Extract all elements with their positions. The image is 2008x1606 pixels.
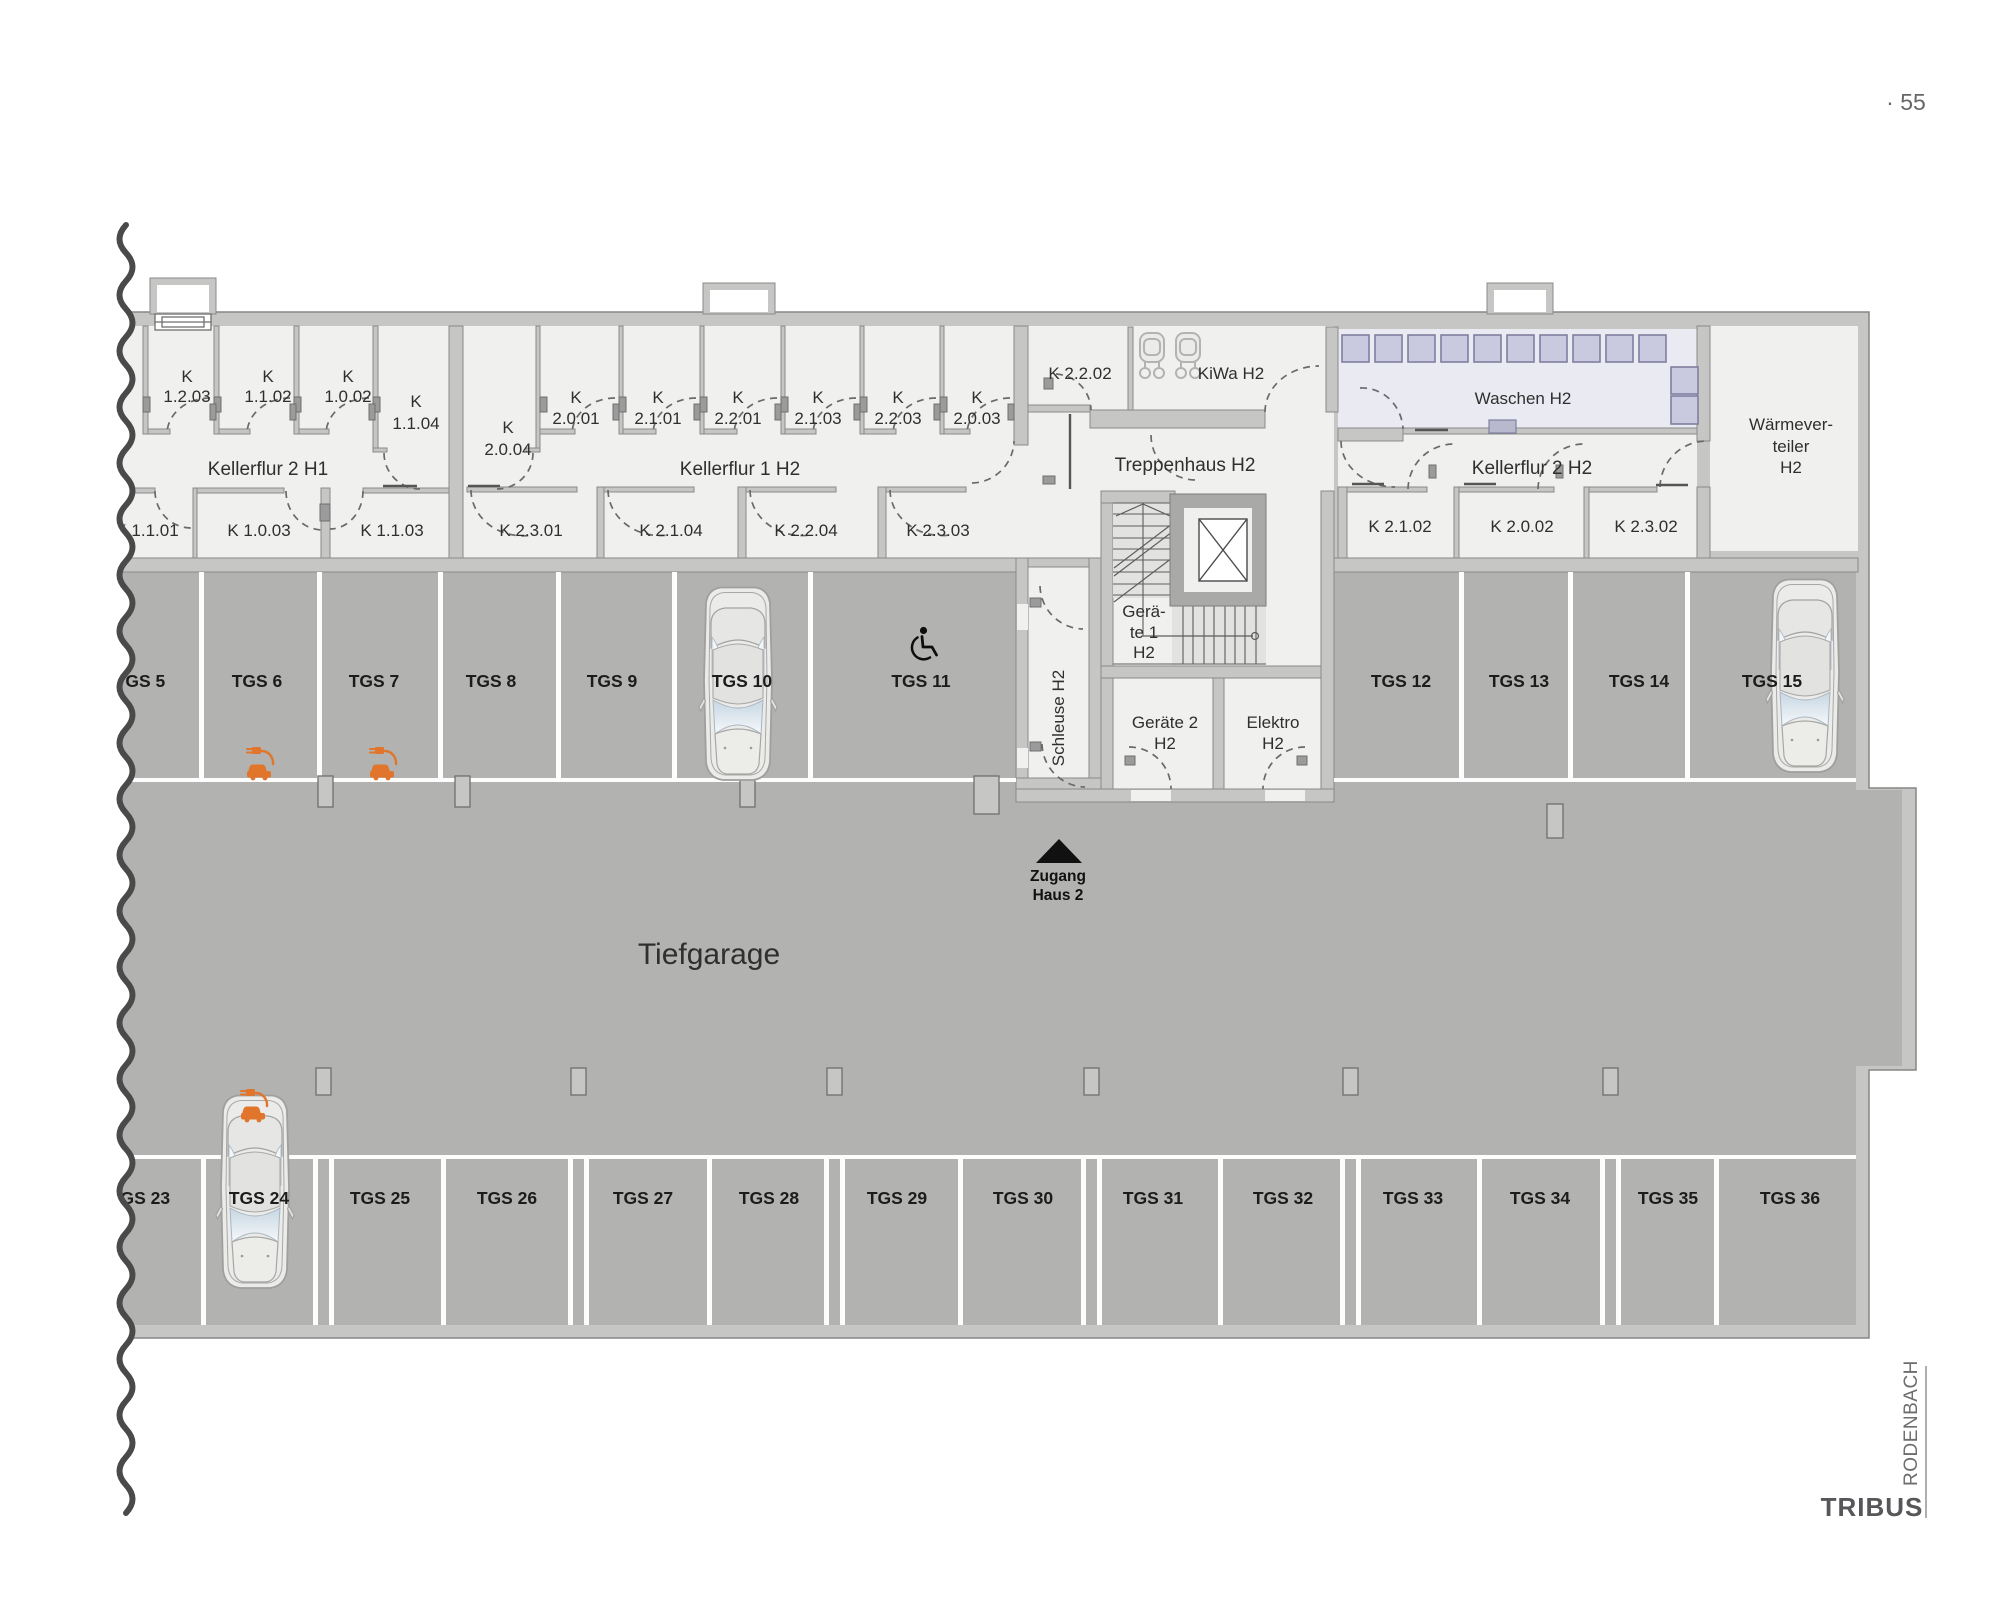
svg-text:te 1: te 1	[1130, 623, 1158, 642]
svg-text:Wärmever-: Wärmever-	[1749, 415, 1833, 434]
svg-text:K 2.2.02: K 2.2.02	[1048, 364, 1111, 383]
svg-text:H2: H2	[1154, 734, 1176, 753]
svg-text:1.1.02: 1.1.02	[244, 387, 291, 406]
svg-text:K: K	[181, 367, 193, 386]
svg-text:Gerä-: Gerä-	[1122, 602, 1165, 621]
svg-text:K 2.1.04: K 2.1.04	[639, 521, 702, 540]
svg-text:TGS 30: TGS 30	[993, 1188, 1054, 1208]
svg-text:TGS 32: TGS 32	[1253, 1188, 1314, 1208]
svg-text:2.2.03: 2.2.03	[874, 409, 921, 428]
svg-text:2.1.03: 2.1.03	[794, 409, 841, 428]
svg-text:K 2.3.02: K 2.3.02	[1614, 517, 1677, 536]
svg-text:teiler: teiler	[1773, 437, 1810, 456]
svg-text:Waschen H2: Waschen H2	[1475, 389, 1572, 408]
svg-text:Haus 2: Haus 2	[1033, 887, 1084, 904]
svg-text:TGS 11: TGS 11	[891, 671, 951, 691]
svg-text:2.0.01: 2.0.01	[552, 409, 599, 428]
svg-text:TRIBUS: TRIBUS	[1821, 1492, 1924, 1522]
svg-text:H2: H2	[1133, 643, 1155, 662]
svg-text:1.2.03: 1.2.03	[163, 387, 210, 406]
svg-text:TGS 12: TGS 12	[1371, 671, 1432, 691]
svg-text:Kellerflur 2 H2: Kellerflur 2 H2	[1472, 458, 1592, 479]
svg-text:TGS 36: TGS 36	[1760, 1188, 1821, 1208]
svg-text:TGS 29: TGS 29	[867, 1188, 928, 1208]
svg-text:K: K	[732, 388, 744, 407]
svg-text:TGS 27: TGS 27	[613, 1188, 673, 1208]
svg-text:Geräte 2: Geräte 2	[1132, 713, 1198, 732]
svg-text:K 2.2.04: K 2.2.04	[774, 521, 837, 540]
svg-text:K: K	[502, 418, 514, 437]
svg-text:TGS 15: TGS 15	[1742, 671, 1803, 691]
svg-text:TGS 13: TGS 13	[1489, 671, 1550, 691]
svg-text:Tiefgarage: Tiefgarage	[638, 938, 780, 971]
svg-text:TGS 7: TGS 7	[349, 671, 400, 691]
svg-text:TGS 24: TGS 24	[229, 1188, 290, 1208]
svg-text:TGS 33: TGS 33	[1383, 1188, 1444, 1208]
svg-text:Treppenhaus H2: Treppenhaus H2	[1115, 455, 1256, 476]
svg-text:TGS 6: TGS 6	[232, 671, 283, 691]
svg-text:· 55: · 55	[1886, 89, 1926, 115]
svg-text:Elektro: Elektro	[1247, 713, 1300, 732]
svg-text:TGS 9: TGS 9	[587, 671, 638, 691]
svg-text:TGS 14: TGS 14	[1609, 671, 1670, 691]
svg-text:H2: H2	[1262, 734, 1284, 753]
svg-text:KiWa H2: KiWa H2	[1198, 364, 1264, 383]
svg-text:K 1.1.03: K 1.1.03	[360, 521, 423, 540]
svg-text:TGS 34: TGS 34	[1510, 1188, 1571, 1208]
svg-text:K 2.0.02: K 2.0.02	[1490, 517, 1553, 536]
svg-text:2.0.04: 2.0.04	[484, 440, 531, 459]
svg-text:K: K	[262, 367, 274, 386]
svg-text:Kellerflur 1 H2: Kellerflur 1 H2	[680, 459, 800, 480]
svg-text:Kellerflur 2 H1: Kellerflur 2 H1	[208, 459, 328, 480]
svg-text:1.1.04: 1.1.04	[392, 414, 439, 433]
svg-text:K: K	[812, 388, 824, 407]
svg-text:TGS 10: TGS 10	[712, 671, 773, 691]
svg-text:K: K	[892, 388, 904, 407]
svg-text:TGS 8: TGS 8	[466, 671, 517, 691]
svg-text:TGS 25: TGS 25	[350, 1188, 411, 1208]
svg-text:2.1.01: 2.1.01	[634, 409, 681, 428]
svg-text:K: K	[570, 388, 582, 407]
svg-text:H2: H2	[1780, 458, 1802, 477]
svg-text:K 2.3.03: K 2.3.03	[906, 521, 969, 540]
svg-text:TGS 26: TGS 26	[477, 1188, 538, 1208]
svg-text:K: K	[971, 388, 983, 407]
svg-text:K: K	[652, 388, 664, 407]
svg-text:1.0.02: 1.0.02	[324, 387, 371, 406]
svg-text:TGS 28: TGS 28	[739, 1188, 800, 1208]
svg-text:Schleuse H2: Schleuse H2	[1049, 670, 1068, 766]
svg-text:K 2.1.02: K 2.1.02	[1368, 517, 1431, 536]
svg-text:2.0.03: 2.0.03	[953, 409, 1000, 428]
svg-text:2.2.01: 2.2.01	[714, 409, 761, 428]
svg-text:RODENBACH: RODENBACH	[1901, 1360, 1922, 1486]
svg-text:TGS 31: TGS 31	[1123, 1188, 1184, 1208]
svg-text:K 1.0.03: K 1.0.03	[227, 521, 290, 540]
svg-text:TGS 35: TGS 35	[1638, 1188, 1699, 1208]
svg-text:K: K	[410, 392, 422, 411]
svg-text:K 2.3.01: K 2.3.01	[499, 521, 562, 540]
svg-text:K: K	[342, 367, 354, 386]
svg-text:Zugang: Zugang	[1030, 868, 1086, 885]
